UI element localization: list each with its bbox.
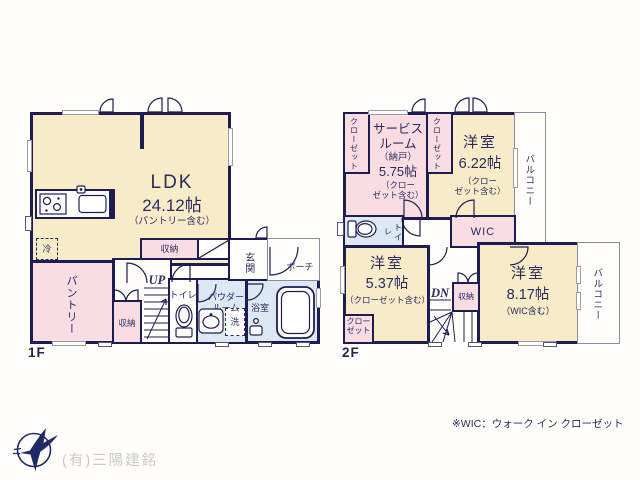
balcony-top-label: バルコニー [523, 150, 534, 210]
vent-tab [337, 222, 344, 236]
dn-label: DN [428, 286, 452, 301]
room537-note: （クローゼット含む） [345, 295, 429, 305]
room817-name: 洋室 [478, 265, 578, 283]
company-logo [13, 428, 58, 472]
room537-label: 洋室 5.37帖 （クローゼット含む） [345, 255, 429, 305]
room622-size: 6.22帖 [448, 156, 512, 173]
window [368, 110, 408, 115]
room817-note: （WIC含む） [478, 306, 578, 317]
room537-size: 5.37帖 [345, 276, 429, 293]
service-room-label: サービス ルーム （納戸） 5.75帖 （クロー ゼット含む） [368, 122, 428, 200]
window [27, 140, 32, 172]
vent-tab [468, 342, 482, 347]
service-size: 5.75帖 [368, 164, 428, 179]
room-toilet-1f [168, 278, 198, 344]
vent-tab [98, 342, 112, 347]
room622-label: 洋室 6.22帖 （クロー ゼット含む） [448, 134, 512, 196]
bird-icon [20, 428, 58, 472]
window [513, 148, 518, 188]
room-porch [267, 238, 320, 281]
balcony-bottom-label: バルコニー [591, 264, 602, 324]
ldk-note: （パントリー含む） [112, 216, 232, 227]
room537-name: 洋室 [345, 255, 429, 273]
powder-line2: ルーム [205, 303, 247, 314]
powder-line1: パウダー [205, 292, 247, 303]
powder-label: パウダー ルーム [205, 292, 247, 313]
storage-2f-label: 収納 [453, 292, 479, 301]
room622-name: 洋室 [448, 134, 512, 152]
entrance-label: 玄関 [242, 249, 254, 277]
service-note1: （クロー [368, 180, 428, 190]
service-note2: ゼット含む） [368, 190, 428, 200]
window [316, 288, 321, 308]
closet3-line2: ゼット [344, 326, 373, 335]
pantry-label: パントリー [64, 274, 77, 336]
storage-small-label: 収納 [113, 318, 141, 328]
up-label: UP [144, 273, 170, 288]
room622-note1: （クロー [448, 176, 512, 186]
service-line1: サービス [368, 122, 428, 137]
toilet-2f-label: トイレ [383, 219, 403, 245]
porch-label: ポーチ [283, 262, 317, 273]
floor2-label: 2F [342, 345, 360, 360]
vent-tab [428, 342, 442, 347]
window [62, 110, 99, 115]
vent-tab [543, 342, 557, 347]
service-line3: （納戸） [368, 152, 428, 163]
window [228, 128, 233, 166]
storage-strip-label: 収納 [143, 244, 196, 255]
vent-tab [258, 342, 272, 347]
room817-label: 洋室 8.17帖 （WIC含む） [478, 265, 578, 316]
closet3-label: クロー ゼット [344, 317, 373, 336]
ldk-label: LDK 24.12帖 （パントリー含む） [112, 172, 232, 228]
room817-size: 8.17帖 [478, 287, 578, 304]
bath-label: 浴室 [246, 303, 274, 314]
wic-label: WIC [452, 226, 514, 239]
wall-stub-ldk [140, 112, 144, 149]
ldk-size: 24.12帖 [112, 196, 232, 216]
window [52, 341, 86, 346]
toilet-1f-label: トイレ [169, 290, 197, 301]
fridge-label: 冷 [36, 244, 58, 255]
room-under-stair-closet [197, 238, 231, 260]
closet1-label: クローゼット [349, 117, 358, 171]
room622-note2: ゼット含む） [448, 186, 512, 196]
vent-tab [25, 216, 32, 231]
closet2-label: クローゼット [432, 117, 441, 171]
service-line2: ルーム [368, 137, 428, 152]
ldk-name: LDK [112, 172, 232, 194]
floor1-label: 1F [28, 345, 46, 360]
wic-footnote: ※WIC：ウォーク イン クローゼット [452, 416, 632, 431]
vent-tab [296, 342, 310, 347]
laundry-label: 洗 [225, 317, 245, 328]
floorplan-page: LDK 24.12帖 （パントリー含む） パントリー 収納 UP 収納 トイレ … [0, 0, 640, 480]
company-name: (有)三陽建銘 [62, 449, 158, 470]
vent-tab [215, 342, 229, 347]
